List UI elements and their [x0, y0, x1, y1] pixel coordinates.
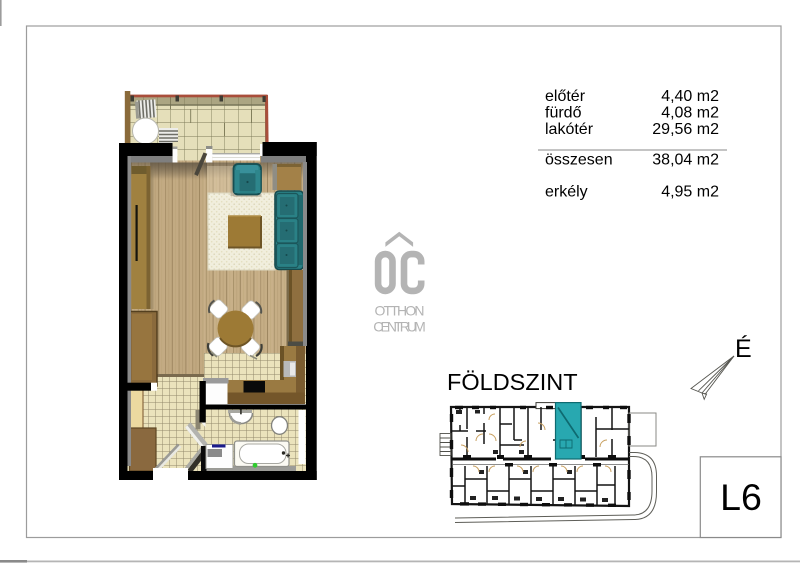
- svg-text:OTTHON: OTTHON: [375, 303, 425, 319]
- svg-text:4,95 m2: 4,95 m2: [661, 184, 719, 201]
- svg-text:É: É: [735, 334, 752, 363]
- svg-text:erkély: erkély: [545, 184, 588, 201]
- svg-text:előtér: előtér: [545, 88, 586, 105]
- svg-text:fürdő: fürdő: [545, 105, 582, 122]
- svg-text:FÖLDSZINT: FÖLDSZINT: [447, 369, 578, 395]
- svg-text:lakótér: lakótér: [545, 121, 594, 138]
- svg-text:L6: L6: [720, 476, 762, 518]
- svg-text:CENTRUM: CENTRUM: [373, 319, 426, 335]
- svg-text:összesen: összesen: [545, 152, 613, 169]
- svg-text:38,04 m2: 38,04 m2: [652, 152, 719, 169]
- svg-text:29,56 m2: 29,56 m2: [652, 121, 719, 138]
- svg-text:4,40 m2: 4,40 m2: [661, 88, 719, 105]
- svg-text:4,08 m2: 4,08 m2: [661, 105, 719, 122]
